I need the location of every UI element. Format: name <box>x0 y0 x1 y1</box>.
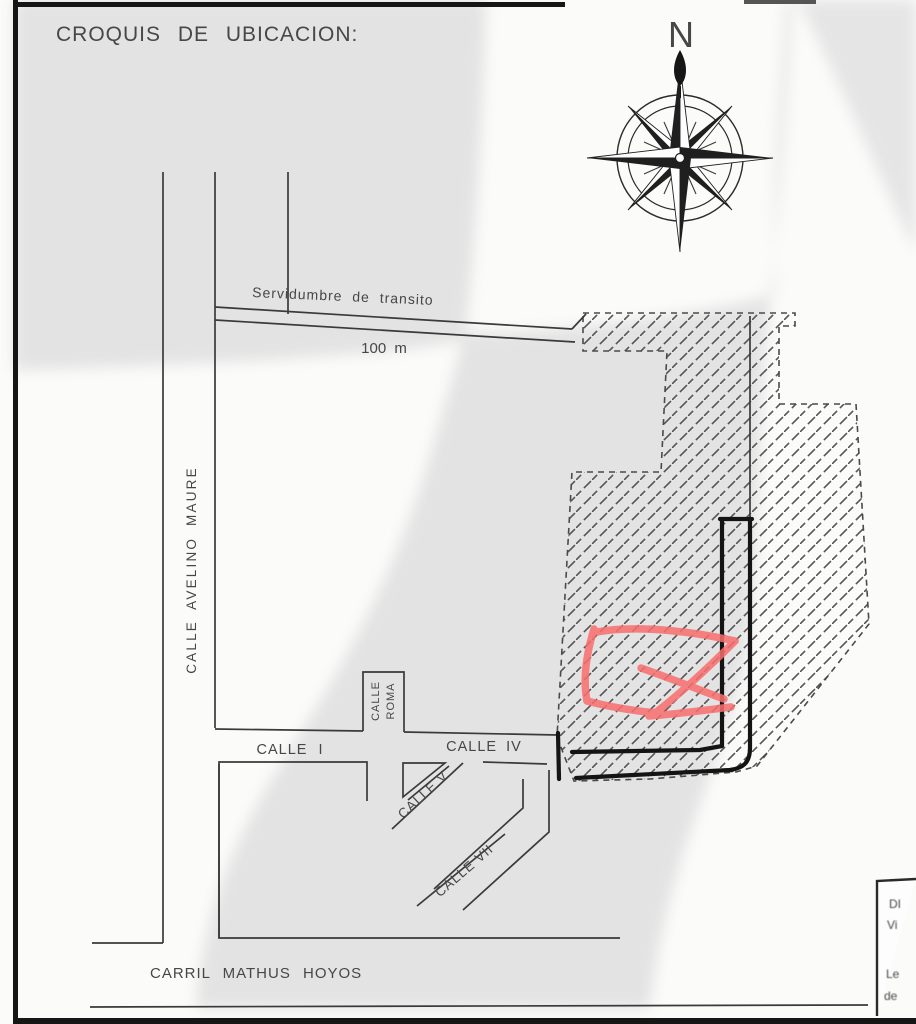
street-label-roma-line1: CALLE <box>370 681 382 721</box>
side-box-fragment-3: Le <box>886 967 900 981</box>
scale-label: 100 m <box>361 340 407 357</box>
side-box-fragment-4: de <box>884 989 898 1003</box>
side-box-fragment-2: Vi <box>887 918 897 932</box>
croquis-map-canvas: N DI Vi Le de CROQUIS DE UBICACION: Serv… <box>0 0 916 1024</box>
street-label-calle-iv: CALLE IV <box>446 739 522 755</box>
street-label-roma-line2: ROMA <box>385 683 397 720</box>
compass-north-label: N <box>668 14 694 55</box>
parcel-outline-hook <box>558 733 559 779</box>
side-box-fragment-1: DI <box>889 897 901 911</box>
bottom-border <box>18 1018 916 1024</box>
page-title: CROQUIS DE UBICACION: <box>56 23 358 46</box>
top-border-fragment <box>744 0 816 4</box>
compass-hub <box>676 154 685 163</box>
street-label-carril: CARRIL MATHUS HOYOS <box>150 965 362 982</box>
street-label-calle-i: CALLE I <box>257 742 324 758</box>
street-label-avelino-maure: CALLE AVELINO MAURE <box>184 466 199 674</box>
scanned-location-sketch: N DI Vi Le de CROQUIS DE UBICACION: Serv… <box>0 0 916 1024</box>
left-border <box>13 0 18 1024</box>
top-border <box>13 2 565 7</box>
